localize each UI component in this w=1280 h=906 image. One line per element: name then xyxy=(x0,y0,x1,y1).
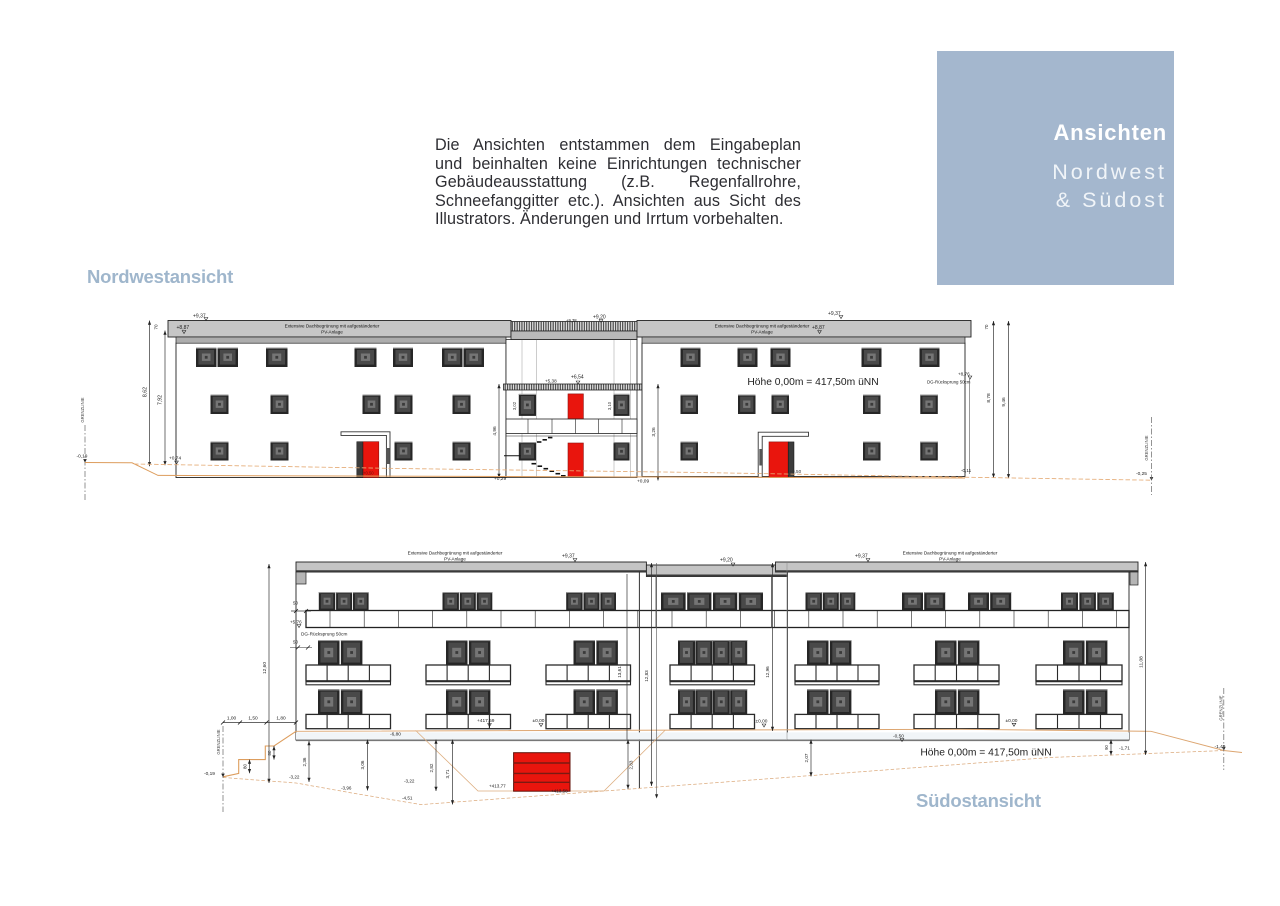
svg-text:+0,50: +0,50 xyxy=(363,471,374,476)
svg-text:+413,77: +413,77 xyxy=(489,784,506,789)
svg-text:8,62: 8,62 xyxy=(142,387,148,397)
svg-text:PV-Anlage: PV-Anlage xyxy=(321,330,343,335)
svg-text:Extensive Dachbegrünung mit au: Extensive Dachbegrünung mit aufgeständer… xyxy=(715,324,810,329)
svg-text:-3,22: -3,22 xyxy=(404,779,415,784)
svg-text:3,02: 3,02 xyxy=(512,401,517,410)
svg-text:Extensive Dachbegrünung mit au: Extensive Dachbegrünung mit aufgeständer… xyxy=(903,551,998,556)
svg-text:+9,37: +9,37 xyxy=(193,314,206,320)
svg-text:-0,19: -0,19 xyxy=(204,771,215,777)
svg-text:Höhe 0,00m = 417,50m üNN: Höhe 0,00m = 417,50m üNN xyxy=(920,748,1051,759)
svg-text:PV-Anlage: PV-Anlage xyxy=(939,557,961,562)
svg-text:+5,38: +5,38 xyxy=(545,379,557,384)
svg-text:GRENZLINIE: GRENZLINIE xyxy=(216,729,221,754)
svg-text:9,46: 9,46 xyxy=(1001,397,1007,407)
svg-text:DG-Rücksprung 50cm: DG-Rücksprung 50cm xyxy=(301,632,347,637)
svg-text:-3,96: -3,96 xyxy=(341,786,352,791)
svg-text:-0,19: -0,19 xyxy=(77,454,88,460)
svg-text:+0,09: +0,09 xyxy=(637,479,649,485)
svg-text:11,08: 11,08 xyxy=(1138,656,1144,668)
svg-text:2,07: 2,07 xyxy=(804,753,809,762)
svg-text:70: 70 xyxy=(984,324,989,329)
svg-text:+5,76: +5,76 xyxy=(290,620,302,625)
svg-text:1,50: 1,50 xyxy=(248,716,258,722)
svg-text:3,26: 3,26 xyxy=(651,427,657,437)
svg-text:12,96: 12,96 xyxy=(765,666,770,678)
svg-text:+0,50: +0,50 xyxy=(790,469,802,474)
svg-text:+0,74: +0,74 xyxy=(169,456,181,462)
svg-text:+413,58: +413,58 xyxy=(551,789,568,794)
svg-text:1,00: 1,00 xyxy=(227,716,237,722)
svg-text:Extensive Dachbegrünung mit au: Extensive Dachbegrünung mit aufgeständer… xyxy=(285,324,380,329)
svg-text:±0,00: ±0,00 xyxy=(756,719,768,725)
svg-text:50: 50 xyxy=(293,640,298,645)
svg-text:3,10: 3,10 xyxy=(607,401,612,410)
svg-text:90: 90 xyxy=(1104,745,1109,750)
svg-text:12,83: 12,83 xyxy=(644,670,649,682)
svg-text:PV-Anlage: PV-Anlage xyxy=(751,330,773,335)
svg-text:3,06: 3,06 xyxy=(360,760,365,769)
svg-text:13,61: 13,61 xyxy=(617,666,622,678)
svg-text:±0,00: ±0,00 xyxy=(1006,718,1018,724)
svg-text:PV-Anlage: PV-Anlage xyxy=(444,557,466,562)
svg-text:±0,00: ±0,00 xyxy=(533,718,545,724)
svg-text:+6,54: +6,54 xyxy=(571,375,584,381)
svg-text:3,71: 3,71 xyxy=(445,769,450,778)
svg-text:80: 80 xyxy=(242,764,247,769)
svg-text:50: 50 xyxy=(293,601,298,606)
svg-text:2,82: 2,82 xyxy=(429,763,434,772)
svg-text:1,80: 1,80 xyxy=(276,716,286,722)
svg-text:4,96: 4,96 xyxy=(492,426,498,436)
svg-text:7,92: 7,92 xyxy=(158,395,164,405)
svg-text:Extensive Dachbegrünung mit au: Extensive Dachbegrünung mit aufgeständer… xyxy=(408,551,503,556)
svg-text:+417,59: +417,59 xyxy=(477,718,495,724)
svg-text:8,78: 8,78 xyxy=(986,393,992,403)
svg-text:2,83: 2,83 xyxy=(629,760,634,769)
svg-text:+9,38: +9,38 xyxy=(566,318,577,323)
svg-text:Höhe 0,00m = 417,50m üNN: Höhe 0,00m = 417,50m üNN xyxy=(747,377,878,388)
svg-text:-0,11: -0,11 xyxy=(961,468,972,473)
svg-text:-1,71: -1,71 xyxy=(1119,746,1130,752)
svg-text:+9,37: +9,37 xyxy=(828,311,841,317)
svg-text:DG-Rücksprung 50cm: DG-Rücksprung 50cm xyxy=(927,380,971,385)
svg-text:2,36: 2,36 xyxy=(302,757,307,766)
svg-text:GRENZLINIE: GRENZLINIE xyxy=(1219,695,1224,720)
svg-text:+9,20: +9,20 xyxy=(720,558,733,564)
svg-text:12,60: 12,60 xyxy=(262,662,268,674)
svg-text:-4,51: -4,51 xyxy=(402,796,413,801)
svg-text:-6,80: -6,80 xyxy=(390,732,401,738)
svg-text:70: 70 xyxy=(154,324,159,330)
svg-text:-0,25: -0,25 xyxy=(1136,471,1147,477)
svg-text:GRENZLINIE: GRENZLINIE xyxy=(1144,435,1149,460)
svg-text:GRENZLINIE: GRENZLINIE xyxy=(80,397,85,422)
svg-text:-3,22: -3,22 xyxy=(289,775,300,780)
